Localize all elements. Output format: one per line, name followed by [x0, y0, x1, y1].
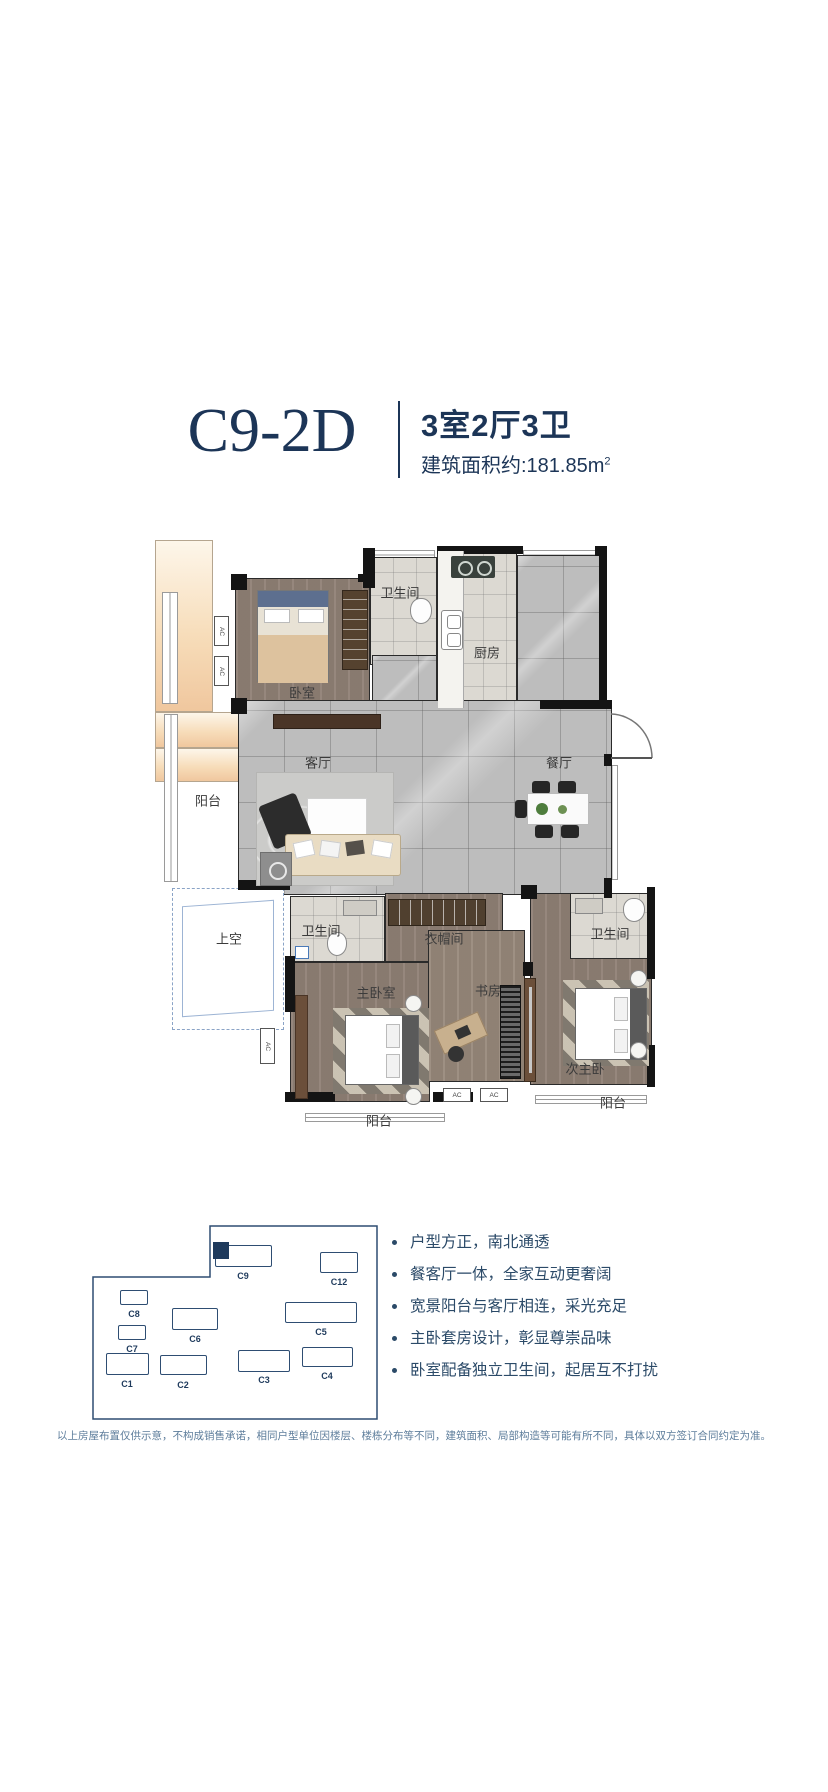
building-c12	[320, 1252, 358, 1273]
room-void	[172, 888, 284, 1030]
dining-chair	[561, 825, 579, 838]
feature-list: 户型方正，南北通透 餐客厅一体，全家互动更奢阔 宽景阳台与客厅相连，采光充足 主…	[388, 1233, 698, 1393]
room-label-bathroom-mid: 卫生间	[301, 921, 340, 940]
wall-segment	[285, 956, 295, 1012]
room-label-master-bedroom: 主卧室	[356, 983, 395, 1002]
header-divider	[398, 401, 400, 478]
building-label: C2	[177, 1380, 189, 1390]
entry-door-arc	[610, 712, 654, 760]
building-c3	[238, 1350, 290, 1372]
building-c7	[118, 1325, 146, 1340]
room-label-balcony-bottom: 阳台	[366, 1111, 392, 1130]
dining-chair	[535, 825, 553, 838]
building-c6	[172, 1308, 218, 1330]
wall-segment	[358, 574, 374, 582]
nightstand-icon	[405, 995, 422, 1012]
bed-icon	[345, 1015, 419, 1085]
building-c9-highlight	[213, 1242, 229, 1259]
sofa-pillow	[293, 839, 316, 859]
ac-unit: AC	[260, 1028, 275, 1064]
wall-segment	[604, 878, 612, 898]
bullet-dot-icon	[392, 1240, 397, 1245]
room-label-study: 书房	[475, 981, 501, 1000]
bullet-dot-icon	[392, 1368, 397, 1373]
nightstand-icon	[405, 1088, 422, 1105]
wall-segment	[521, 885, 537, 899]
disclaimer-text: 以上房屋布置仅供示意，不构成销售承诺，相同户型单位因楼层、楼栋分布等不同，建筑面…	[40, 1428, 788, 1443]
dining-chair	[515, 800, 527, 818]
bed-headboard	[402, 1016, 418, 1084]
building-c4	[302, 1347, 353, 1367]
feature-text: 宽景阳台与客厅相连，采光充足	[410, 1298, 627, 1315]
toilet-icon	[623, 898, 645, 922]
plant-icon	[536, 803, 548, 815]
wall-segment	[523, 962, 533, 976]
partition-shelf	[524, 978, 536, 1082]
ac-unit: AC	[443, 1088, 471, 1102]
building-c2	[160, 1355, 207, 1375]
building-label: C3	[258, 1375, 270, 1385]
room-label-living: 客厅	[305, 753, 331, 772]
unit-code-title: C9-2D	[158, 396, 386, 467]
closet-rack	[388, 899, 486, 926]
wall-segment	[231, 574, 247, 590]
building-label: C5	[315, 1327, 327, 1337]
feature-item: 户型方正，南北通透	[388, 1233, 698, 1252]
floor-lamp	[529, 987, 532, 1073]
floorplan-brochure-page: C9-2D 3室2厅3卫 建筑面积约:181.85m2	[0, 0, 828, 1792]
window-band	[535, 1095, 647, 1104]
room-label-bathroom-top: 卫生间	[380, 583, 419, 602]
window-band	[162, 592, 178, 704]
bullet-dot-icon	[392, 1272, 397, 1277]
wall-segment	[363, 548, 375, 588]
building-label: C12	[331, 1277, 348, 1287]
area-superscript: 2	[604, 455, 610, 467]
room-label-balcony-left: 阳台	[195, 791, 221, 810]
sink-icon	[441, 610, 463, 650]
building-label: C8	[128, 1309, 140, 1319]
wall-segment	[647, 887, 655, 979]
ac-unit: AC	[214, 656, 229, 686]
feature-item: 餐客厅一体，全家互动更奢阔	[388, 1265, 698, 1284]
building-label: C9	[237, 1271, 249, 1281]
sofa-pillow	[371, 839, 393, 858]
building-c1	[106, 1353, 149, 1375]
vanity-icon	[575, 898, 603, 914]
room-label-second-master: 次主卧	[565, 1059, 604, 1078]
floor-plan: AC AC AC AC AC 卫生间 厨房 卧室 客厅 餐厅 阳台 上空 卫生间…	[155, 540, 665, 1140]
plant-icon	[558, 805, 567, 814]
wall-segment	[285, 1092, 335, 1102]
bullet-dot-icon	[392, 1304, 397, 1309]
feature-item: 宽景阳台与客厅相连，采光充足	[388, 1297, 698, 1316]
area-spec: 建筑面积约:181.85m2	[421, 449, 611, 478]
toilet-icon	[410, 598, 432, 624]
burner	[458, 561, 473, 576]
wall-segment	[231, 698, 247, 714]
building-label: C4	[321, 1371, 333, 1381]
bed-pillow	[614, 1029, 628, 1053]
bed-pillow	[298, 609, 324, 623]
feature-text: 餐客厅一体，全家互动更奢阔	[410, 1266, 612, 1283]
feature-text: 户型方正，南北通透	[410, 1234, 550, 1251]
bed-pillow	[614, 997, 628, 1021]
stove-icon	[451, 556, 495, 578]
building-label: C6	[189, 1334, 201, 1344]
feature-text: 主卧套房设计，彰显尊崇品味	[410, 1330, 612, 1347]
sofa-icon	[285, 834, 401, 876]
side-table	[260, 852, 292, 886]
sink-bowl	[447, 615, 461, 629]
room-label-void: 上空	[216, 929, 242, 948]
feature-text: 卧室配备独立卫生间，起居互不打扰	[410, 1362, 658, 1379]
room-label-dining: 餐厅	[546, 753, 572, 772]
side-table-top	[269, 862, 287, 880]
wall-segment	[540, 700, 612, 709]
ac-unit: AC	[214, 616, 229, 646]
bookshelf-icon	[500, 985, 521, 1079]
bed-pillow	[264, 609, 290, 623]
dining-table	[527, 793, 589, 825]
building-c5	[285, 1302, 357, 1323]
room-label-bathroom-right: 卫生间	[590, 924, 629, 943]
room-entry-corridor	[517, 555, 603, 705]
room-label-cloakroom: 衣帽间	[424, 929, 463, 948]
laptop-icon	[454, 1025, 471, 1040]
sofa-pillow	[319, 840, 341, 859]
tv-console	[273, 714, 381, 729]
desk-chair	[448, 1046, 464, 1062]
site-plan: C9 C12 C8 C6 C5 C7 C1 C2 C3 C4	[92, 1225, 378, 1420]
feature-item: 卧室配备独立卫生间，起居互不打扰	[388, 1361, 698, 1380]
nightstand-icon	[630, 1042, 647, 1059]
bullet-dot-icon	[392, 1336, 397, 1341]
void-inner-line	[182, 900, 274, 1018]
vanity-icon	[343, 900, 377, 916]
wardrobe-icon	[342, 590, 368, 670]
building-c8	[120, 1290, 148, 1305]
room-label-balcony-right: 阳台	[600, 1093, 626, 1112]
window-band	[164, 714, 178, 882]
sofa-pillow	[345, 840, 365, 856]
bed-pillow	[386, 1054, 400, 1078]
ac-unit: AC	[480, 1088, 508, 1102]
room-label-kitchen: 厨房	[474, 643, 500, 662]
bench-icon	[295, 995, 308, 1099]
layout-spec: 3室2厅3卫	[421, 400, 572, 445]
wall-segment	[599, 546, 607, 708]
bed-blanket	[258, 635, 328, 683]
room-label-bedroom-top: 卧室	[289, 683, 315, 702]
building-label: C1	[121, 1379, 133, 1389]
bed-headboard	[258, 591, 328, 607]
burner	[477, 561, 492, 576]
door-marker	[295, 946, 309, 959]
bed-icon	[257, 590, 329, 682]
sink-bowl	[447, 633, 461, 647]
bed-pillow	[386, 1024, 400, 1048]
feature-item: 主卧套房设计，彰显尊崇品味	[388, 1329, 698, 1348]
area-text: 建筑面积约:181.85m	[421, 455, 604, 477]
nightstand-icon	[630, 970, 647, 987]
